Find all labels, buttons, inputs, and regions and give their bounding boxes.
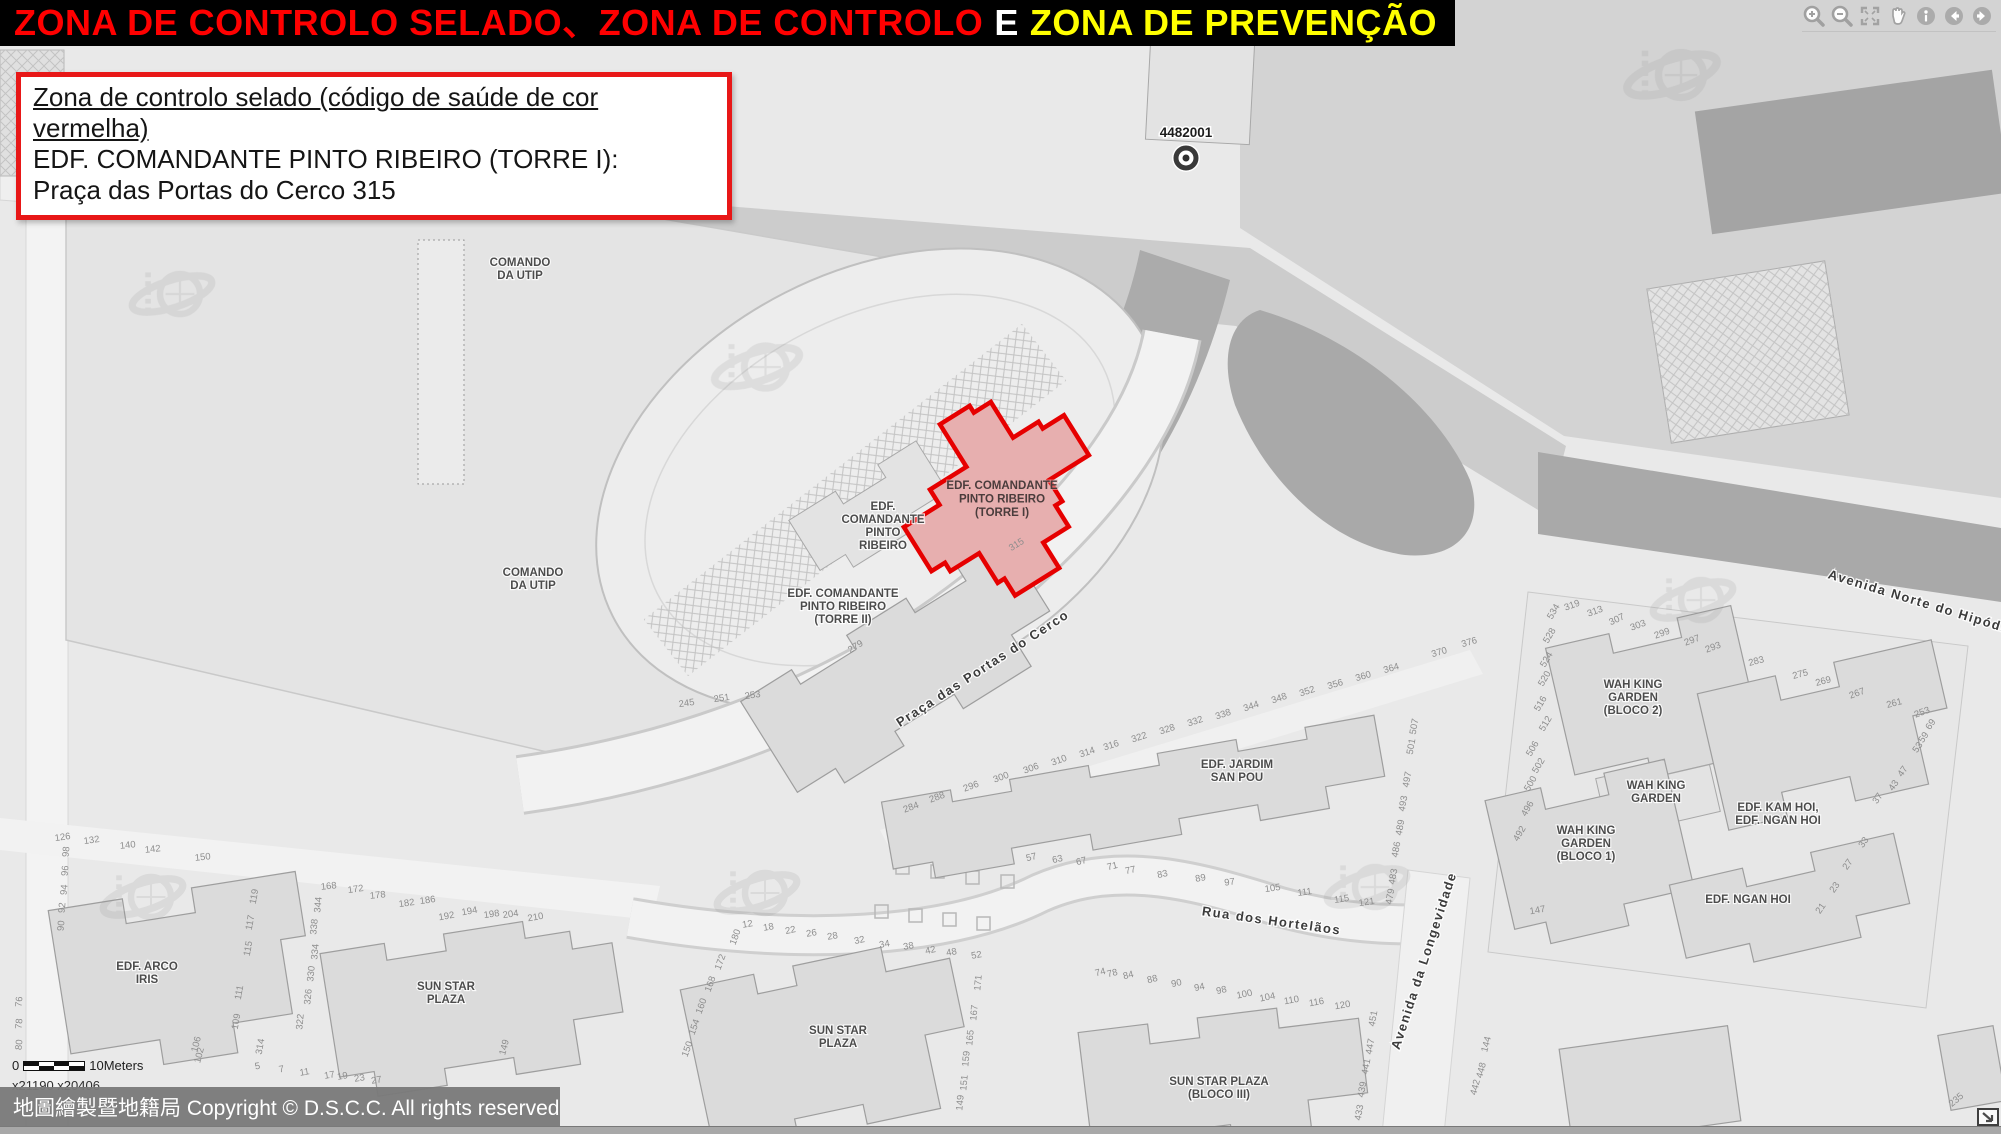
house-number: 80 xyxy=(14,1039,26,1050)
house-number: 182 xyxy=(398,897,415,910)
house-number: 97 xyxy=(1224,876,1236,888)
house-number: 149 xyxy=(954,1094,966,1111)
building-label: EDF. JARDIM xyxy=(1201,759,1273,771)
house-number: 245 xyxy=(678,697,695,710)
house-number: 38 xyxy=(902,940,914,953)
title-text-red: ZONA DE CONTROLO SELADO、ZONA DE CONTROLO xyxy=(14,5,983,41)
building-label: IRIS xyxy=(136,974,159,986)
building-label: COMANDANTE xyxy=(841,514,924,526)
building-label: EDF. KAM HOI, xyxy=(1737,802,1818,814)
building-label: GARDEN xyxy=(1561,838,1611,850)
building-label: DA UTIP xyxy=(497,270,543,282)
house-number: 18 xyxy=(762,921,774,934)
zoom-in-icon[interactable] xyxy=(1802,4,1826,28)
building-label: RIBEIRO xyxy=(859,540,907,552)
building-label: COMANDO xyxy=(503,567,564,579)
scale-start-label: 0 xyxy=(12,1058,19,1073)
scale-end-label: 10Meters xyxy=(89,1058,143,1073)
building-label: EDF. NGAN HOI xyxy=(1735,815,1821,827)
house-number: 89 xyxy=(1194,872,1206,885)
house-number: 19 xyxy=(336,1070,348,1083)
copyright-bar: 地圖繪製暨地籍局 Copyright © D.S.C.C. All rights… xyxy=(0,1087,560,1127)
house-number: 94 xyxy=(1193,981,1206,994)
full-extent-icon[interactable] xyxy=(1858,4,1882,28)
zone-info-box: Zona de controlo selado (código de saúde… xyxy=(16,72,732,220)
house-number: 11 xyxy=(299,1066,311,1079)
building-label: COMANDO xyxy=(490,257,551,269)
house-number: 90 xyxy=(1170,977,1183,990)
building-label: PINTO xyxy=(866,527,901,539)
building-label: GARDEN xyxy=(1631,793,1681,805)
house-number: 204 xyxy=(502,908,519,921)
building-label: EDF. NGAN HOI xyxy=(1705,894,1791,906)
building-label: DA UTIP xyxy=(510,580,556,592)
house-number: 52 xyxy=(970,949,982,962)
survey-marker xyxy=(1172,144,1200,172)
house-number: 167 xyxy=(968,1004,980,1021)
house-number: 42 xyxy=(924,944,937,957)
house-number: 63 xyxy=(1051,853,1064,866)
house-number: 171 xyxy=(972,974,984,991)
identify-info-icon[interactable] xyxy=(1914,4,1938,28)
house-number: 121 xyxy=(1358,896,1375,909)
house-number: 83 xyxy=(1156,868,1169,881)
house-number: 186 xyxy=(419,894,436,907)
house-number: 48 xyxy=(945,946,957,959)
building-label: WAH KING xyxy=(1557,825,1616,837)
copyright-text: 地圖繪製暨地籍局 Copyright © D.S.C.C. All rights… xyxy=(13,1092,559,1122)
building-label: PLAZA xyxy=(427,994,465,1006)
sealed-zone-label: EDF. COMANDANTE xyxy=(946,480,1057,492)
building-label: PINTO RIBEIRO xyxy=(800,601,886,613)
house-number: 27 xyxy=(370,1074,382,1087)
sealed-zone-label: (TORRE I) xyxy=(975,507,1029,519)
house-number: 178 xyxy=(369,889,386,902)
house-number: 338 xyxy=(308,918,320,935)
building-label: (BLOCO 1) xyxy=(1557,851,1616,863)
house-number: 172 xyxy=(347,883,364,896)
pan-hand-icon[interactable] xyxy=(1886,4,1910,28)
building-label: WAH KING xyxy=(1604,679,1663,691)
map-toolbar xyxy=(1802,4,1994,28)
house-number: 150 xyxy=(194,851,211,864)
scale-strip xyxy=(23,1061,85,1071)
house-number: 115 xyxy=(1333,893,1350,906)
building-label: SAN POU xyxy=(1211,772,1263,784)
house-number: 34 xyxy=(878,938,890,951)
house-number: 90 xyxy=(56,920,68,931)
house-number: 344 xyxy=(312,896,324,913)
house-number: 165 xyxy=(964,1029,976,1046)
house-number: 111 xyxy=(1297,886,1313,899)
building-utip-annex xyxy=(418,240,464,484)
house-number: 78 xyxy=(14,1018,26,1029)
building-label: GARDEN xyxy=(1608,692,1658,704)
building-label: EDF. COMANDANTE xyxy=(787,588,898,600)
zone-info-address: Praça das Portas do Cerco 315 xyxy=(33,175,715,206)
hatch-area-northeast xyxy=(1647,261,1849,443)
house-number: 17 xyxy=(323,1069,335,1082)
house-number: 132 xyxy=(83,834,100,847)
house-number: 28 xyxy=(826,930,838,943)
building-label: (TORRE II) xyxy=(814,614,871,626)
house-number: 92 xyxy=(57,902,69,913)
house-number: 251 xyxy=(713,692,730,705)
house-number: 326 xyxy=(302,988,314,1005)
resize-corner-icon[interactable] xyxy=(1977,1108,1999,1126)
house-number: 96 xyxy=(60,865,72,876)
house-number: 105 xyxy=(1264,882,1281,895)
building-label: SUN STAR xyxy=(809,1025,868,1037)
house-number: 126 xyxy=(54,831,71,844)
house-number: 140 xyxy=(119,839,136,852)
title-bar: ZONA DE CONTROLO SELADO、ZONA DE CONTROLO… xyxy=(0,0,1455,46)
house-number: 12 xyxy=(741,918,753,931)
house-number: 198 xyxy=(483,908,500,921)
zone-info-heading: Zona de controlo selado (código de saúde… xyxy=(33,82,715,144)
building-label: SUN STAR xyxy=(417,981,476,993)
survey-marker-label: 4482001 xyxy=(1160,125,1213,140)
house-number: 253 xyxy=(744,689,761,702)
scale-bar: 0 10Meters xyxy=(12,1058,143,1073)
building-label: (BLOCO III) xyxy=(1188,1089,1250,1101)
toolbar-divider xyxy=(1802,31,1996,32)
house-number: 26 xyxy=(805,927,817,940)
sealed-zone-label: PINTO RIBEIRO xyxy=(959,494,1045,506)
house-number: 168 xyxy=(320,880,337,893)
house-number: 76 xyxy=(14,996,26,1007)
house-number: 322 xyxy=(294,1013,306,1030)
house-number: 142 xyxy=(144,843,161,856)
house-number: 98 xyxy=(61,846,73,857)
house-number: 77 xyxy=(1124,864,1137,877)
next-extent-icon[interactable] xyxy=(1970,4,1994,28)
building-label: (BLOCO 2) xyxy=(1604,705,1663,717)
house-number: 32 xyxy=(853,934,866,947)
title-conjunction: E xyxy=(994,5,1019,41)
building-label: WAH KING xyxy=(1627,780,1686,792)
house-number: 330 xyxy=(305,965,317,982)
house-number: 23 xyxy=(353,1072,365,1085)
zoom-out-icon[interactable] xyxy=(1830,4,1854,28)
zone-info-building: EDF. COMANDANTE PINTO RIBEIRO (TORRE I): xyxy=(33,144,715,175)
house-number: 159 xyxy=(960,1050,972,1067)
house-number: 334 xyxy=(309,943,321,960)
house-number: 151 xyxy=(958,1074,970,1091)
house-number: 22 xyxy=(784,924,797,937)
house-number: 94 xyxy=(59,884,71,895)
building-label: PLAZA xyxy=(819,1038,857,1050)
previous-extent-icon[interactable] xyxy=(1942,4,1966,28)
house-number: 98 xyxy=(1215,984,1228,997)
building-label: EDF. ARCO xyxy=(116,961,178,973)
building-label: EDF. xyxy=(871,501,896,513)
bottom-edge-strip xyxy=(0,1126,2001,1134)
building-label: SUN STAR PLAZA xyxy=(1169,1076,1268,1088)
title-text-yellow: ZONA DE PREVENÇÃO xyxy=(1030,5,1437,41)
